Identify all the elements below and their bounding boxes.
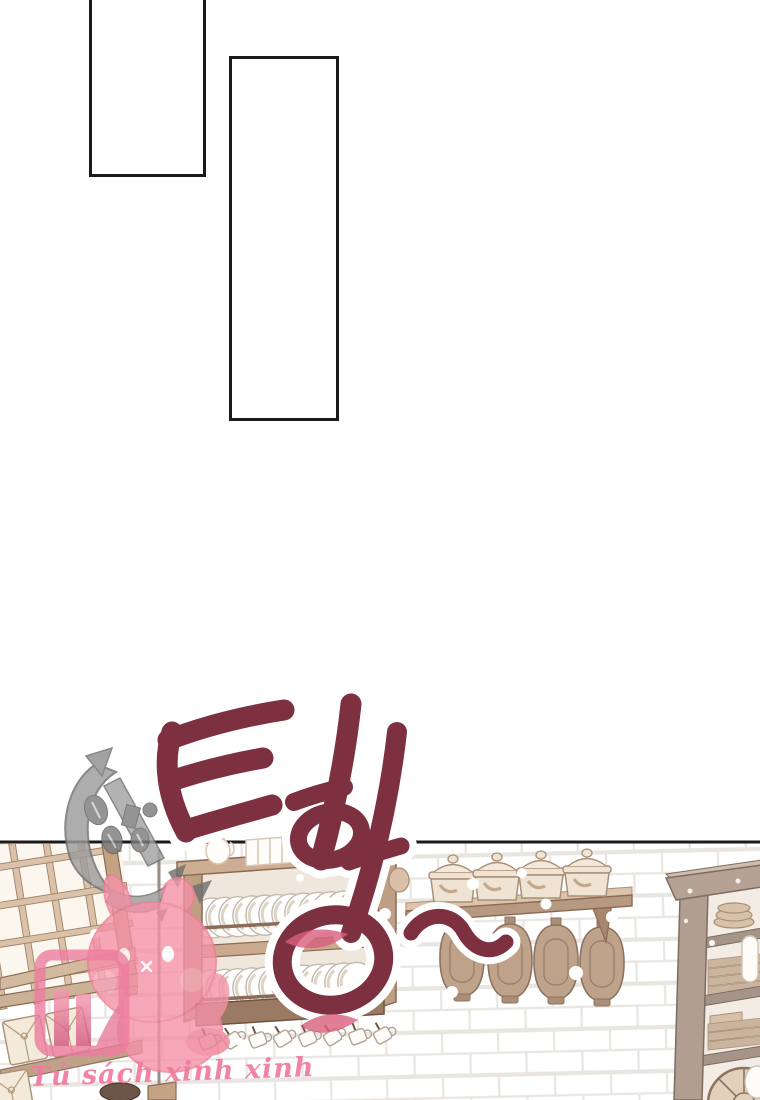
tan-jar [389,868,409,892]
white-bottle [742,936,758,982]
kitchen-scene-panel: Tủ sách xinh xinh [0,690,760,1100]
webtoon-page: Tủ sách xinh xinh [0,0,760,1100]
empty-panel-top-left [89,0,206,177]
open-cabinet [666,860,760,1100]
empty-panel-top-center [229,56,339,421]
bunny-eye [162,946,174,962]
